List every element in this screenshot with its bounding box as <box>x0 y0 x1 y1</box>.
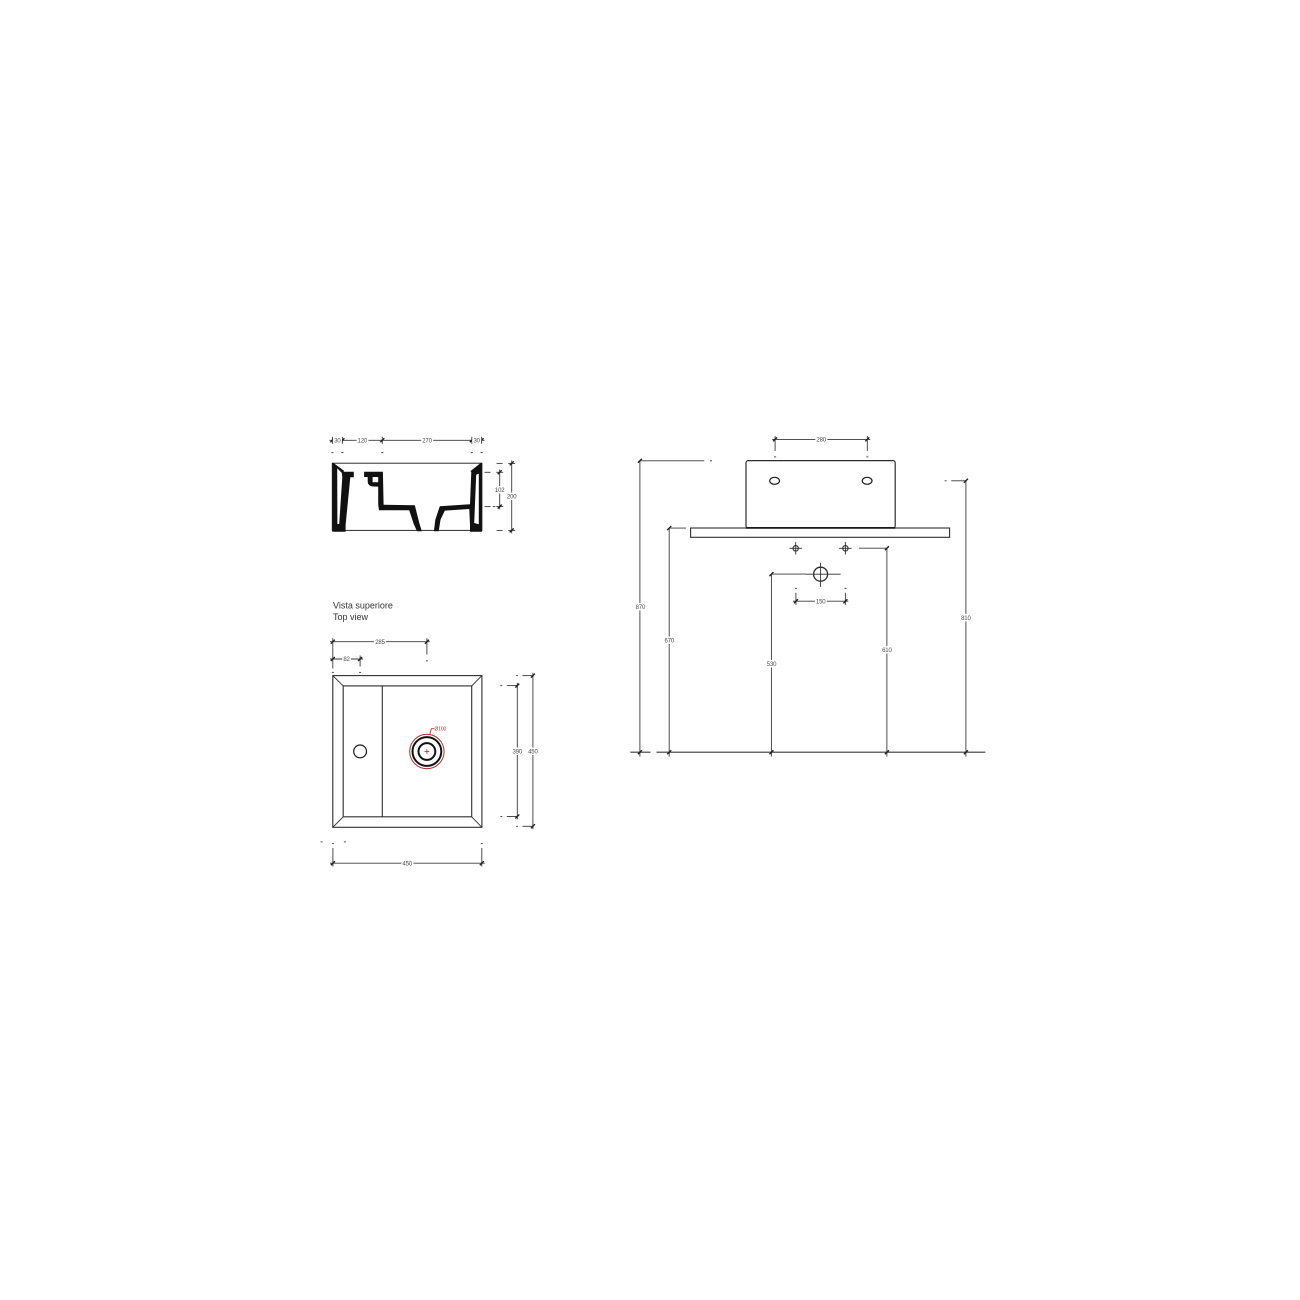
svg-text:610: 610 <box>882 648 892 654</box>
svg-text:102: 102 <box>495 488 505 494</box>
svg-text:670: 670 <box>665 638 675 644</box>
svg-text:200: 200 <box>507 495 517 501</box>
svg-text:Top view: Top view <box>333 612 369 622</box>
svg-text:450: 450 <box>528 749 538 755</box>
svg-text:280: 280 <box>816 438 826 444</box>
svg-text:30: 30 <box>474 439 481 445</box>
svg-text:120: 120 <box>358 439 368 445</box>
svg-text:82: 82 <box>343 657 350 663</box>
svg-text:810: 810 <box>961 616 971 622</box>
svg-text:450: 450 <box>403 861 413 867</box>
svg-text:530: 530 <box>767 662 777 668</box>
svg-text:30: 30 <box>334 439 341 445</box>
svg-text:Vista superiore: Vista superiore <box>333 601 393 611</box>
svg-text:150: 150 <box>816 599 826 605</box>
svg-text:285: 285 <box>375 640 385 646</box>
svg-text:390: 390 <box>513 749 523 755</box>
svg-text:Ø100: Ø100 <box>434 727 446 733</box>
svg-text:870: 870 <box>636 605 646 611</box>
svg-text:270: 270 <box>422 439 432 445</box>
